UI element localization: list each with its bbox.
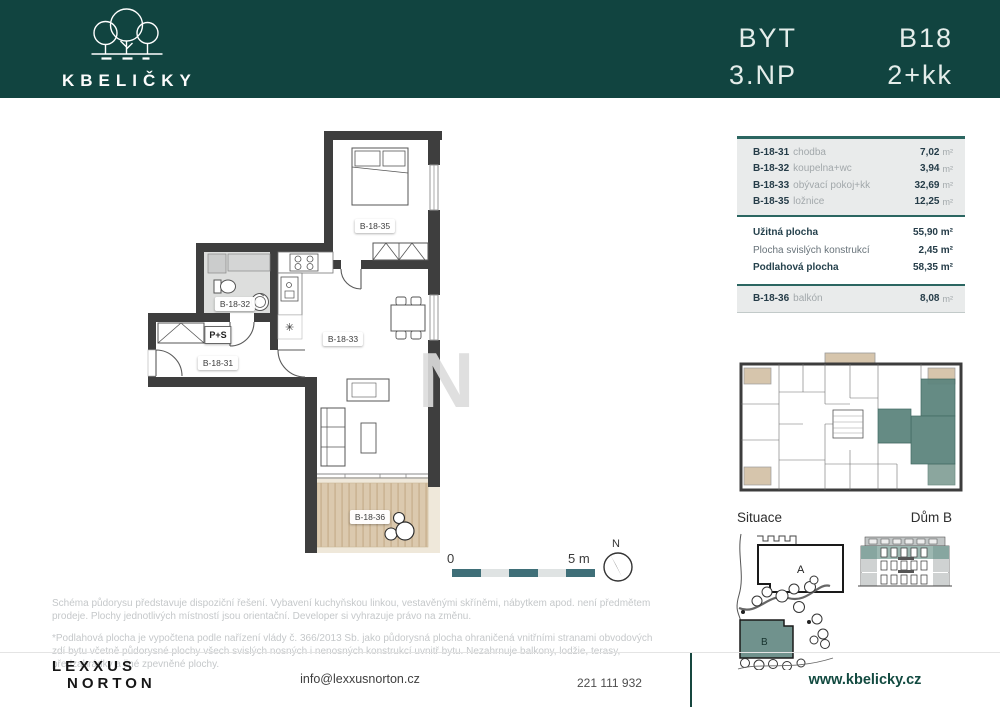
balcony-section: B-18-36 balkón 8,08 m² xyxy=(737,286,965,314)
room-name: balkón xyxy=(793,293,822,304)
situace-title: Situace xyxy=(737,510,782,525)
table-row: Užitná plocha 55,90 m² xyxy=(753,224,953,242)
table-row: B-18-33 obývací pokoj+kk 32,69 m² xyxy=(753,177,953,194)
scale-bar xyxy=(452,569,595,577)
dum-b-title: Dům B xyxy=(887,510,952,525)
entry-threshold xyxy=(148,350,156,376)
bedroom-wardrobe xyxy=(373,243,428,260)
room-area-unit: m² xyxy=(943,197,954,207)
room-label-living: B-18-33 xyxy=(323,332,363,346)
watermark-letter: N xyxy=(418,336,470,424)
site-plan: A B xyxy=(733,530,848,670)
compass-icon: N xyxy=(595,533,645,585)
room-area-unit: m² xyxy=(943,294,954,304)
building-elevation xyxy=(855,536,955,590)
contact-email[interactable]: info@lexxusnorton.cz xyxy=(270,672,450,686)
bed xyxy=(352,148,408,205)
table-row: Plocha svislých konstrukcí 2,45 m² xyxy=(753,242,953,260)
summary-value: 58,35 m² xyxy=(913,262,953,273)
table-row: B-18-31 chodba 7,02 m² xyxy=(753,144,953,161)
area-table: B-18-31 chodba 7,02 m² B-18-32 koupelna+… xyxy=(737,136,965,313)
summary-label: Podlahová plocha xyxy=(753,262,839,273)
closet-label: P+S xyxy=(204,326,231,344)
kitchen-symbol: ✳ xyxy=(285,322,294,334)
room-area: 32,69 xyxy=(914,180,939,191)
table-row: B-18-32 koupelna+wc 3,94 m² xyxy=(753,161,953,178)
unit-id: B18 xyxy=(803,20,953,57)
website-link[interactable]: www.kbelicky.cz xyxy=(765,672,965,688)
coffee-table xyxy=(361,423,376,453)
disclaimer-note: Schéma půdorysu představuje dispoziční ř… xyxy=(52,597,677,623)
summary-section: Užitná plocha 55,90 m² Plocha svislých k… xyxy=(737,217,965,286)
summary-value: 2,45 m² xyxy=(919,245,953,256)
trees-icon xyxy=(83,6,171,64)
brand-name: KBELIČKY xyxy=(62,71,192,91)
room-code: B-18-31 xyxy=(753,147,789,158)
room-area-unit: m² xyxy=(943,147,954,157)
room-code: B-18-36 xyxy=(753,293,789,304)
room-code: B-18-33 xyxy=(753,180,789,191)
byt-label: BYT xyxy=(617,20,797,57)
room-code: B-18-35 xyxy=(753,196,789,207)
room-code: B-18-32 xyxy=(753,163,789,174)
room-area: 8,08 xyxy=(920,293,939,304)
footer-vertical-divider xyxy=(690,653,692,707)
building-a-label: A xyxy=(797,564,805,576)
apartment-floor-plan: ✳ xyxy=(140,115,470,585)
room-area: 3,94 xyxy=(920,163,939,174)
lexxus-norton-logo: LEXXUS NORTON xyxy=(52,658,156,692)
footer-divider xyxy=(0,652,1000,653)
summary-value: 55,90 m² xyxy=(913,227,953,238)
building-floor-overview xyxy=(737,352,965,497)
room-name: koupelna+wc xyxy=(793,163,852,174)
room-areas-section: B-18-31 chodba 7,02 m² B-18-32 koupelna+… xyxy=(737,136,965,217)
table-row: Podlahová plocha 58,35 m² xyxy=(753,259,953,277)
scale-zero: 0 xyxy=(447,551,454,566)
room-area-unit: m² xyxy=(943,180,954,190)
summary-label: Plocha svislých konstrukcí xyxy=(753,245,870,256)
room-name: obývací pokoj+kk xyxy=(793,180,870,191)
hall-wardrobe xyxy=(158,323,204,343)
table-row: B-18-36 balkón 8,08 m² xyxy=(753,291,953,308)
room-area: 7,02 xyxy=(920,147,939,158)
brochure-page: KBELIČKY BYT 3.NP B18 2+kk xyxy=(0,0,1000,707)
floor-label: 3.NP xyxy=(617,57,797,94)
room-area-unit: m² xyxy=(943,164,954,174)
room-label-balcony: B-18-36 xyxy=(350,510,390,524)
stair-core xyxy=(833,410,863,438)
room-name: ložnice xyxy=(793,196,824,207)
scale-max: 5 m xyxy=(568,551,590,566)
header: KBELIČKY BYT 3.NP B18 2+kk xyxy=(0,0,1000,98)
contact-phone[interactable]: 221 111 932 xyxy=(577,676,642,690)
building-b-label: B xyxy=(761,637,768,648)
brand-logo: KBELIČKY xyxy=(62,6,192,91)
table-row: B-18-35 ložnice 12,25 m² xyxy=(753,194,953,211)
room-area: 12,25 xyxy=(914,196,939,207)
dining-table xyxy=(391,297,425,339)
tv-unit xyxy=(347,379,389,401)
room-label-bath: B-18-32 xyxy=(215,297,255,311)
floor-plan-drawing: ✳ xyxy=(140,115,470,585)
unit-layout: 2+kk xyxy=(803,57,953,94)
trees-bottom xyxy=(741,659,806,671)
room-label-hall: B-18-31 xyxy=(198,356,238,370)
unit-id-block: B18 2+kk xyxy=(803,20,953,94)
room-label-bedroom: B-18-35 xyxy=(355,219,395,233)
compass-north-label: N xyxy=(612,538,620,550)
brand-line1: LEXXUS xyxy=(52,658,156,675)
summary-label: Užitná plocha xyxy=(753,227,818,238)
brand-line2: NORTON xyxy=(67,675,156,692)
unit-type-block: BYT 3.NP xyxy=(617,20,797,94)
room-name: chodba xyxy=(793,147,826,158)
sofa xyxy=(321,408,345,466)
